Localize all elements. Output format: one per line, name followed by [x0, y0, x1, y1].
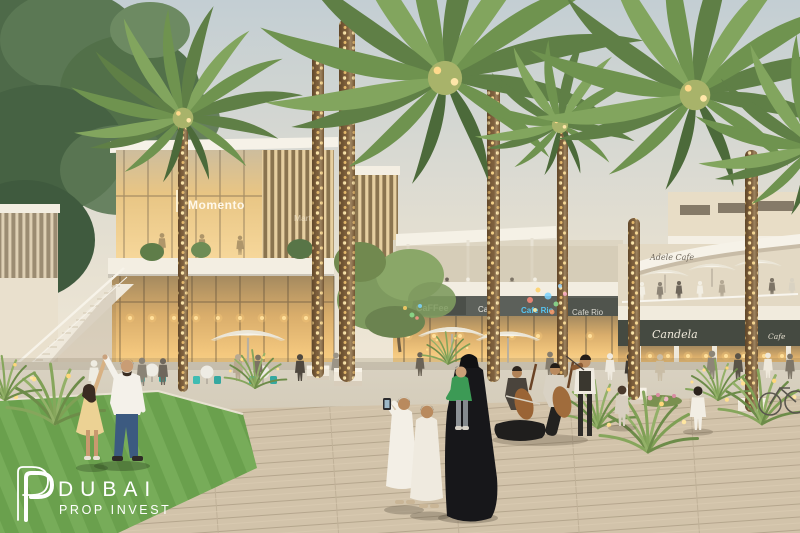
- render-image: Dusk architectural rendering of a landsc…: [0, 0, 800, 533]
- sign-cafe-rio-blue: Cafe Rio: [521, 306, 554, 315]
- instrument-cases: [494, 420, 545, 441]
- sign-candela: Candela: [652, 328, 698, 341]
- sign-momento: Momento: [188, 198, 245, 212]
- watermark-tagline: PROP INVEST: [59, 503, 171, 517]
- pendant-lamps-left: [126, 314, 311, 323]
- sign-terrace-script: Adele Cafe: [649, 253, 694, 262]
- sign-cafe-rio: Cafe Rio: [572, 308, 604, 317]
- sign-cafe-small: Cafe: [768, 332, 786, 341]
- plaza-scene: Dusk architectural rendering of a landsc…: [0, 0, 800, 533]
- watermark-brand: DUBAI: [58, 478, 157, 501]
